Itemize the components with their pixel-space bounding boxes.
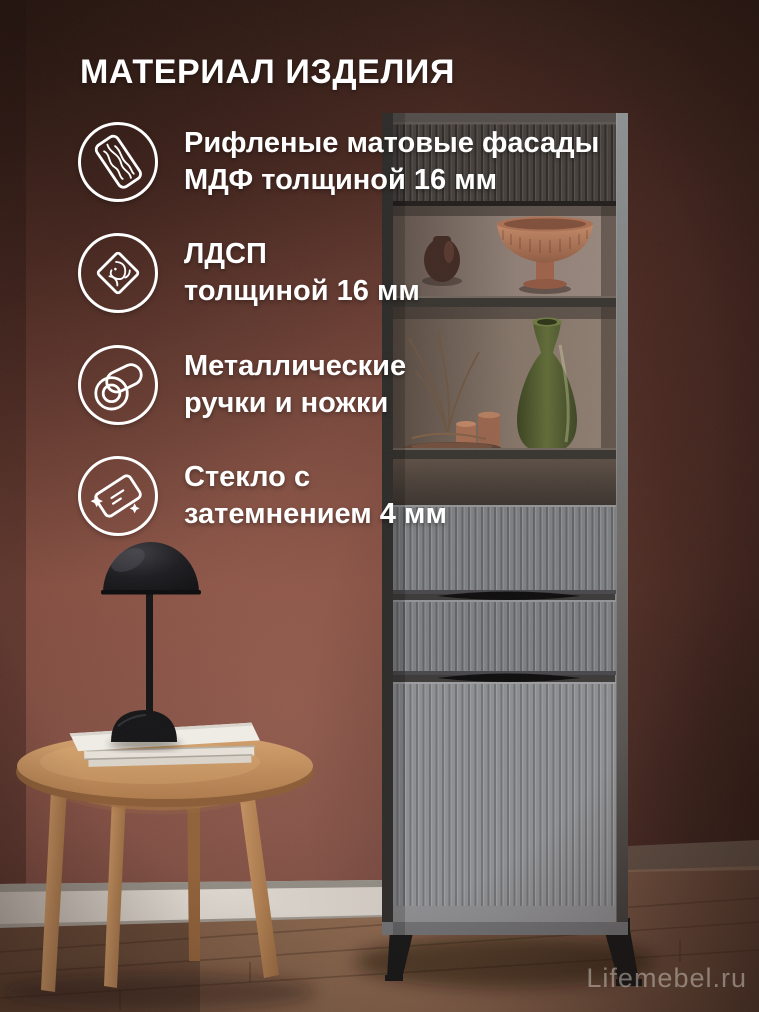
feature-text: ЛДСП толщиной 16 мм xyxy=(184,236,420,310)
metal-fittings-icon xyxy=(78,345,158,425)
watermark: Lifemebel.ru xyxy=(586,963,747,994)
feature-text: Рифленые матовые фасады МДФ толщиной 16 … xyxy=(184,125,599,199)
feature-tinted-glass: Стекло с затемнением 4 мм xyxy=(78,455,447,537)
mdf-board-icon xyxy=(78,122,158,202)
feature-metal-fittings: Металлические ручки и ножки xyxy=(78,344,406,426)
feature-text: Металлические ручки и ножки xyxy=(184,348,406,422)
chipboard-icon xyxy=(78,233,158,313)
product-infographic: МАТЕРИАЛ ИЗДЕЛИЯ Рифленые матовые фасады xyxy=(0,0,759,1012)
page-title: МАТЕРИАЛ ИЗДЕЛИЯ xyxy=(80,53,455,92)
text-overlay: МАТЕРИАЛ ИЗДЕЛИЯ Рифленые матовые фасады xyxy=(0,0,759,1012)
tinted-glass-icon xyxy=(78,456,158,536)
feature-mdf-facades: Рифленые матовые фасады МДФ толщиной 16 … xyxy=(78,121,599,203)
feature-text: Стекло с затемнением 4 мм xyxy=(184,459,447,533)
feature-ldsp: ЛДСП толщиной 16 мм xyxy=(78,232,420,314)
